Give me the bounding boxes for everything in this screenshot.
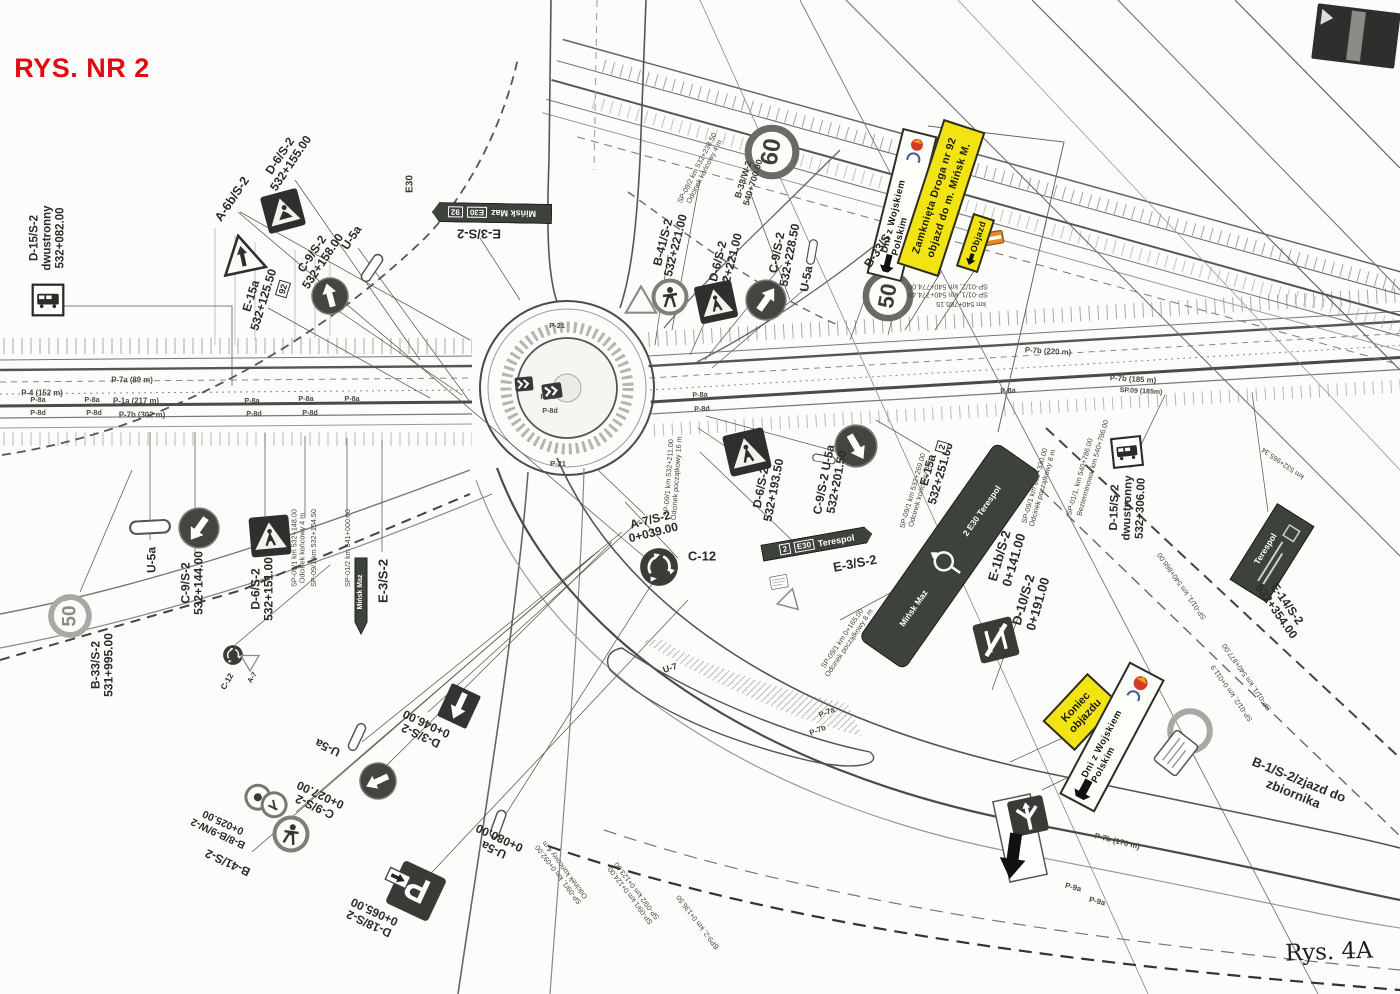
dest-minsk: Mińsk Maz <box>491 208 536 219</box>
fp-sp01-pair: SP-01/1, km 540+774.49 SP-01/2, km 540+7… <box>908 282 988 299</box>
mark-p8d-2: P-8d <box>86 409 102 417</box>
fp-km785: km 540+785.15 <box>936 300 986 308</box>
mark-p8d-1: P-8d <box>30 409 46 417</box>
handwritten-note: Rys. 4A <box>1285 939 1373 968</box>
label-b33s2-sw: B-33/S-2 531+995.00 <box>90 633 117 697</box>
c12-circle-icon <box>638 546 680 588</box>
speed-60: 60 <box>756 137 787 168</box>
dest-terespol: Terespol <box>817 532 855 548</box>
mark-p7a-89: P-7a (89 m) <box>111 377 153 386</box>
mark-p8a-5: P-8a <box>344 395 359 403</box>
bus-stop-sign-icon <box>1108 433 1145 470</box>
scanned-traffic-plan: Dni z Wojskiem Polskim Zamknięta Droga n… <box>0 0 1400 994</box>
mark-p1a: P-1a (217 m) <box>113 398 159 407</box>
mark-p8a-8: P-8a <box>1000 387 1016 396</box>
mark-p8a-1: P-8a <box>30 396 45 404</box>
label-d15-e: D-15/S-2 dwustronny 532+306.00 <box>1108 475 1149 541</box>
mark-p8a-6: P-8a <box>540 393 555 401</box>
no-pedestrians-icon <box>650 277 690 317</box>
mark-p8d-3: P-8d <box>246 410 262 418</box>
label-d15-nw: D-15/S-2 dwustronny 532+082.00 <box>29 205 68 270</box>
euro-route-e30: E30 <box>467 207 487 218</box>
cross-diagonals <box>700 0 1400 994</box>
mark-p8a-4: P-8a <box>298 395 313 403</box>
u5a-pill-icon <box>129 519 172 536</box>
label-u5a-w: U-5a <box>145 547 158 573</box>
route-2: 2 <box>779 543 791 556</box>
label-c12-big: C-12 <box>688 550 716 565</box>
mark-p21-a: P-21 <box>549 322 565 330</box>
yield-outline-icon <box>240 654 260 672</box>
label-d6-w: D-6/S-2 532+151.00 <box>250 557 277 621</box>
dark-board-icon <box>1310 2 1400 70</box>
mark-p7b-302: P-7b (302 m) <box>119 412 165 421</box>
mark-p8d-4: P-8d <box>302 409 318 417</box>
direction-board-minsk: Mińsk Maz E30 92 <box>432 202 552 224</box>
west-road <box>0 338 472 446</box>
crosswalk-sign-icon <box>247 513 293 559</box>
chevron-board-icon <box>513 373 535 395</box>
roundabout-glyph-icon <box>917 535 973 591</box>
mark-p8a-7: P-8a <box>692 391 708 400</box>
label-c9-w: C-9/S-2 532+144.00 <box>180 551 207 615</box>
objazd-text: Objazd <box>968 219 988 253</box>
mark-p8a-3: P-8a <box>244 397 259 405</box>
label-minsk-maz-small: Mińsk Maz <box>357 574 365 609</box>
roundabout <box>480 301 654 475</box>
drawing-title: RYS. NR 2 <box>14 53 150 83</box>
label-e30: E30 <box>404 175 415 193</box>
mark-p8d-5: P-8d <box>542 407 558 415</box>
euro-route-e30: E30 <box>793 539 815 553</box>
big-arrow-icon <box>995 831 1031 881</box>
fp-sp541: SP-01/2 km 541+000.00 <box>344 509 352 587</box>
down-arrow-icon <box>964 252 977 267</box>
e1b-dest-bottom: Mińsk Maz <box>897 588 930 629</box>
e1b-dest-top: 2 E30 Terespol <box>961 484 1003 538</box>
label-e3-w: E-3/S-2 <box>377 559 392 603</box>
fp-sp148: SP-09/1 km 532+148.00 Odcinek końcowy 4 … <box>291 509 308 587</box>
mark-p8d-6: P-8d <box>694 405 710 414</box>
speed-50-ne: 50 <box>874 282 903 310</box>
mark-p8a-2: P-8a <box>84 396 99 404</box>
bus-stop-sign-icon <box>30 282 66 318</box>
label-e3-north: E-3/S-2 <box>457 226 501 241</box>
speed-50-sw: 50 <box>59 605 80 626</box>
fp-sp154: SP-09/1 km 532+154.50 <box>310 509 318 587</box>
route-92: 92 <box>448 207 463 218</box>
mark-p21-b: P-21 <box>550 460 566 468</box>
